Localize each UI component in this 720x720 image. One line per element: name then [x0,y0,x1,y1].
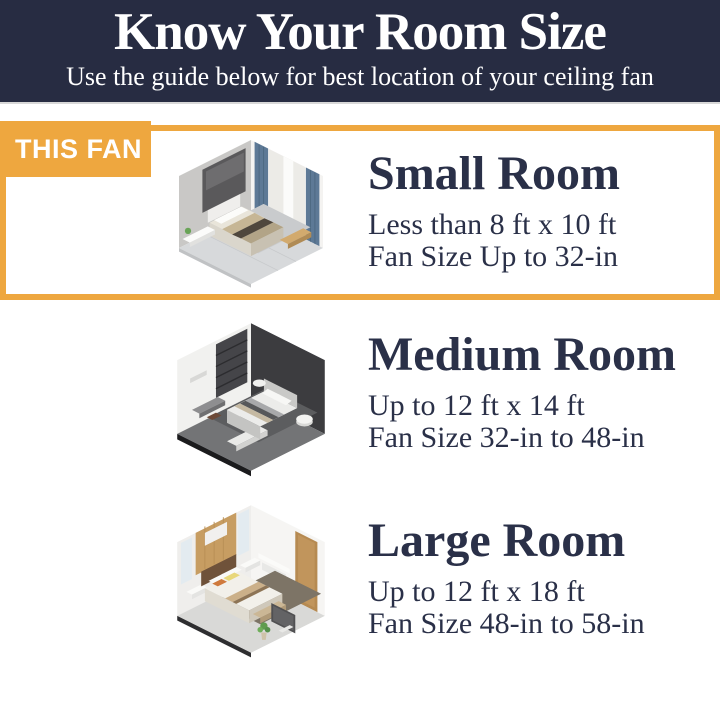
isometric-bedroom-small-icon [148,131,354,293]
isometric-bedroom-medium-icon [146,314,356,480]
page-subtitle: Use the guide below for best location of… [0,60,720,94]
large-room-heading: Large Room [368,516,645,566]
this-fan-badge: THIS FAN [0,121,151,177]
medium-room-dimensions: Up to 12 ft x 14 ft [368,390,676,422]
page-title: Know Your Room Size [0,4,720,60]
medium-room-text: Medium Room Up to 12 ft x 14 ft Fan Size… [368,330,676,454]
small-room-text: Small Room Less than 8 ft x 10 ft Fan Si… [368,149,620,273]
medium-room-heading: Medium Room [368,330,676,380]
small-room-fan-size: Fan Size Up to 32-in [368,241,620,273]
section-medium-room: Medium Room Up to 12 ft x 14 ft Fan Size… [0,310,720,480]
infographic: Know Your Room Size Use the guide below … [0,0,720,660]
section-large-room: Large Room Up to 12 ft x 18 ft Fan Size … [0,490,720,660]
isometric-bedroom-large-icon [146,496,356,662]
large-room-illustration [146,496,356,662]
large-room-text: Large Room Up to 12 ft x 18 ft Fan Size … [368,516,645,640]
large-room-fan-size: Fan Size 48-in to 58-in [368,608,645,640]
header: Know Your Room Size Use the guide below … [0,0,720,104]
this-fan-badge-label: THIS FAN [15,134,142,165]
section-small-room: THIS FAN [0,125,720,300]
small-room-heading: Small Room [368,149,620,199]
small-room-dimensions: Less than 8 ft x 10 ft [368,209,620,241]
medium-room-illustration [146,314,356,480]
small-room-illustration [148,131,354,293]
large-room-dimensions: Up to 12 ft x 18 ft [368,576,645,608]
medium-room-fan-size: Fan Size 32-in to 48-in [368,422,676,454]
